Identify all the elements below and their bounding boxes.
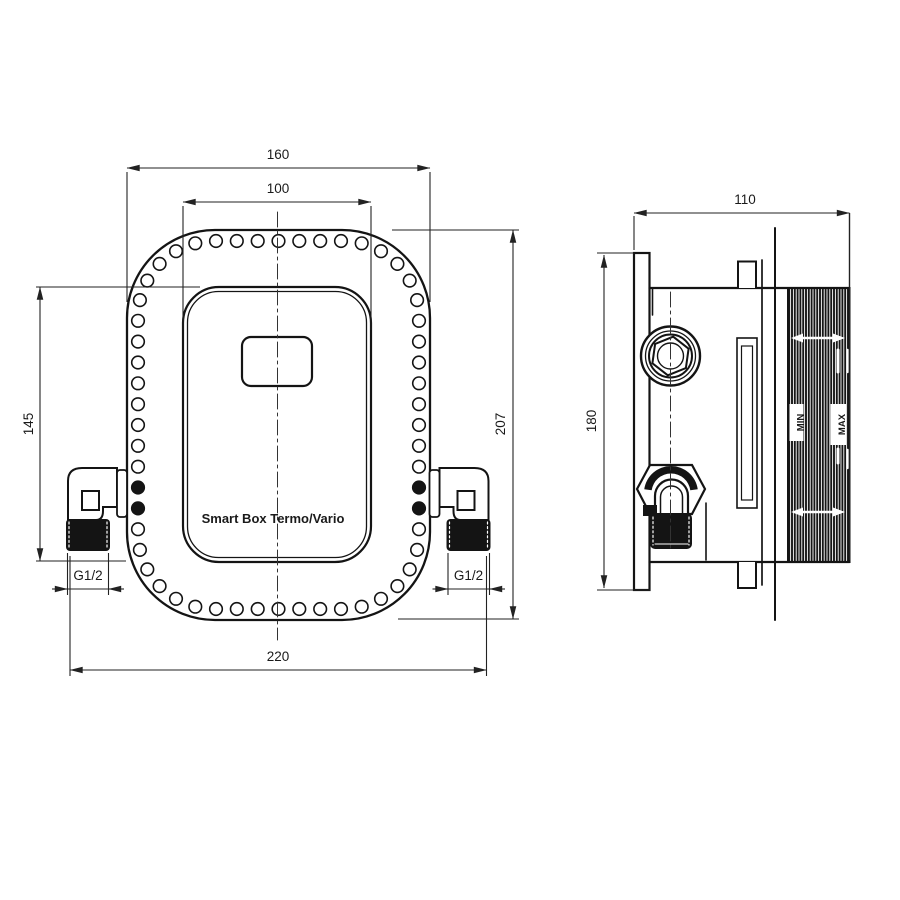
screw-hole <box>231 235 244 248</box>
dim-plate-height-label: 180 <box>584 410 599 433</box>
screw-hole <box>210 603 223 616</box>
screw-hole <box>413 377 426 390</box>
screw-hole <box>411 544 424 557</box>
screw-hole <box>153 258 166 271</box>
screw-hole <box>413 460 426 473</box>
screw-hole <box>403 563 416 576</box>
screw-hole <box>411 294 424 307</box>
screw-hole <box>413 335 426 348</box>
screw-hole <box>293 235 306 248</box>
screw-hole <box>134 294 147 307</box>
screw-hole <box>335 603 348 616</box>
screw-hole <box>210 235 223 248</box>
screw-hole <box>251 235 264 248</box>
dim-outer-width-label: 160 <box>267 147 290 162</box>
bottom-tab <box>738 562 756 588</box>
slot-outer <box>737 338 757 508</box>
screw-hole <box>314 603 327 616</box>
screw-hole <box>132 335 145 348</box>
dim-total-width-label: 220 <box>267 649 290 664</box>
screw-hole <box>132 398 145 411</box>
screw-hole <box>170 593 183 606</box>
dim-inner-height-label: 145 <box>21 413 36 436</box>
screw-hole <box>132 440 145 453</box>
screw-hole <box>335 235 348 248</box>
screw-hole <box>391 580 404 593</box>
dim-outer-height-label: 207 <box>493 413 508 436</box>
screw-hole <box>141 274 154 287</box>
screw-hole <box>355 600 368 613</box>
drawing-svg: Smart Box Termo/Vario <box>0 0 900 900</box>
top-tab <box>738 262 756 289</box>
screw-hole <box>272 603 285 616</box>
right-flange <box>430 470 440 517</box>
screw-hole <box>403 274 416 287</box>
left-thread-label: G1/2 <box>73 568 102 583</box>
dim-depth-label: 110 <box>734 192 756 207</box>
screw-hole-filled <box>132 481 145 494</box>
side-dimension-labels: 110 180 <box>584 192 756 432</box>
max-label: MAX <box>837 413 848 435</box>
screw-hole <box>413 315 426 328</box>
screw-hole <box>153 580 166 593</box>
screw-hole <box>132 315 145 328</box>
screw-hole <box>375 593 388 606</box>
right-thread-label: G1/2 <box>454 568 483 583</box>
left-flange <box>117 470 127 517</box>
left-thread-end <box>66 519 110 551</box>
left-connector <box>66 468 127 551</box>
right-bracket-hole <box>458 491 475 510</box>
product-label: Smart Box Termo/Vario <box>202 511 345 526</box>
screw-hole <box>413 398 426 411</box>
dim-inner-width-label: 100 <box>267 181 290 196</box>
min-label: MIN <box>796 414 807 432</box>
screw-hole <box>251 603 264 616</box>
screw-hole <box>132 377 145 390</box>
screw-hole <box>231 603 244 616</box>
technical-drawing-canvas: Smart Box Termo/Vario <box>0 0 900 900</box>
screw-hole <box>132 419 145 432</box>
screw-hole <box>314 235 327 248</box>
right-thread-end <box>447 519 491 551</box>
left-bracket-hole <box>82 491 99 510</box>
depth-sleeve: MIN MAX <box>788 288 850 562</box>
screw-hole <box>413 356 426 369</box>
screw-hole <box>132 523 145 536</box>
screw-hole-filled <box>132 502 145 515</box>
screw-hole-filled <box>413 502 426 515</box>
screw-hole <box>375 245 388 258</box>
screw-hole <box>413 440 426 453</box>
screw-hole <box>132 356 145 369</box>
screw-hole <box>189 237 202 250</box>
right-connector <box>430 468 491 551</box>
side-back-plate <box>634 253 650 590</box>
screw-hole <box>189 600 202 613</box>
screw-hole <box>170 245 183 258</box>
side-view: MIN MAX <box>634 228 850 620</box>
screw-hole <box>132 460 145 473</box>
screw-hole <box>413 419 426 432</box>
screw-hole <box>293 603 306 616</box>
screw-hole <box>391 258 404 271</box>
screw-hole <box>272 235 285 248</box>
screw-hole <box>134 544 147 557</box>
screw-hole <box>413 523 426 536</box>
screw-hole <box>355 237 368 250</box>
front-view: Smart Box Termo/Vario <box>66 212 491 640</box>
screw-hole <box>141 563 154 576</box>
screw-hole-filled <box>413 481 426 494</box>
